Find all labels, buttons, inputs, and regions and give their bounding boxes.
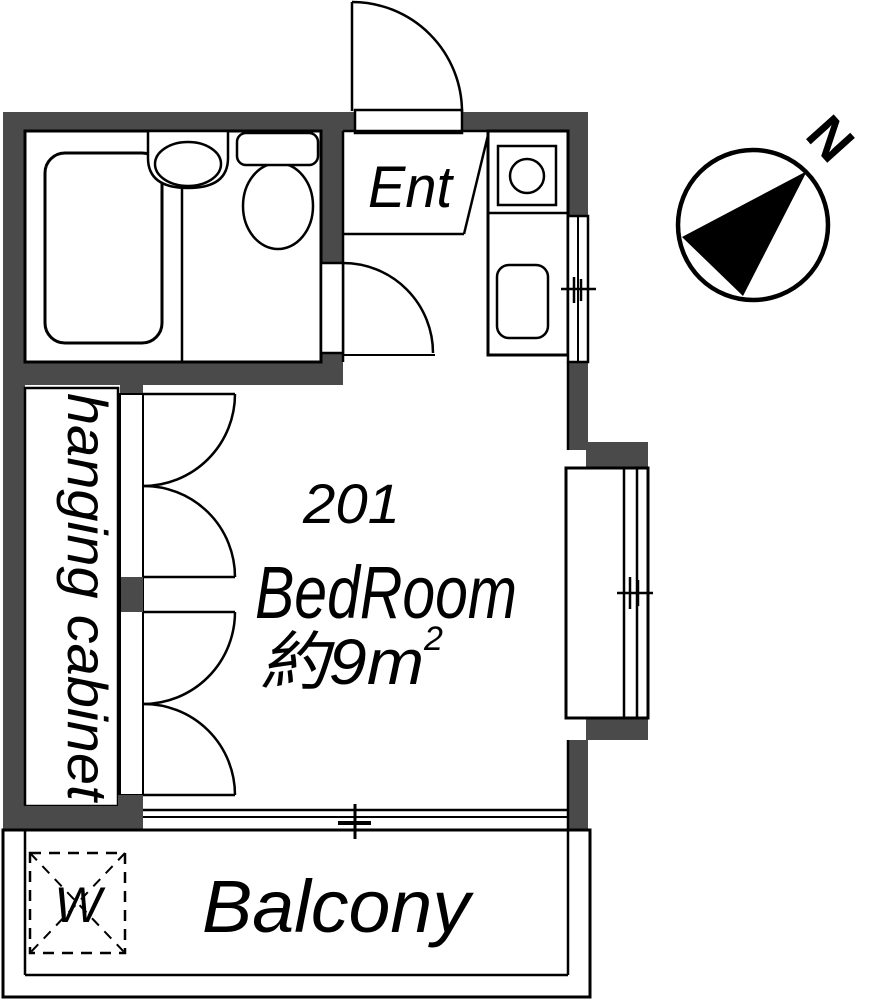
- entrance-label: Ent: [368, 155, 455, 220]
- wall-bay-jut-bottom: [586, 716, 648, 740]
- balcony-label: Balcony: [202, 865, 474, 948]
- bedroom-area-label: 約9m: [260, 626, 424, 698]
- washing-machine-label: W: [54, 877, 106, 933]
- toilet-bowl: [243, 163, 313, 249]
- bathroom-door-leaf: [321, 263, 343, 353]
- wall-right-mid: [568, 362, 588, 450]
- sink-basin: [155, 142, 221, 186]
- wall-right-low: [568, 740, 588, 830]
- stove-top: [498, 146, 556, 205]
- floor-plan-page: N Ent 201 BedRoom 約9m 2 hanging cabinet …: [0, 0, 870, 999]
- wall-closet-stub-top: [120, 385, 143, 394]
- bedroom-label: BedRoom: [255, 551, 517, 634]
- kitchen-sink: [497, 265, 548, 338]
- wall-below-bathroom: [3, 362, 343, 385]
- wall-left: [3, 112, 25, 830]
- entrance-threshold: [355, 110, 462, 133]
- floor-plan-drawing: N Ent 201 BedRoom 約9m 2 hanging cabinet …: [0, 0, 870, 999]
- bedroom-area-superscript: 2: [423, 620, 443, 658]
- wall-top-left: [3, 112, 355, 131]
- wall-bathroom-door-stub: [321, 353, 343, 365]
- toilet-tank: [237, 133, 318, 165]
- unit-number-label: 201: [302, 472, 400, 535]
- hanging-cabinet-label: hanging cabinet: [56, 393, 119, 804]
- kitchen: [488, 131, 568, 355]
- wall-right-top: [568, 112, 588, 216]
- wall-bathroom-entrance: [321, 131, 343, 263]
- wall-closet-stub-mid: [121, 577, 143, 612]
- hanging-cabinet-label-group: hanging cabinet: [56, 393, 119, 804]
- bathtub: [45, 153, 162, 343]
- wall-bottom-left: [3, 806, 143, 830]
- wall-bay-jut-top: [586, 442, 648, 470]
